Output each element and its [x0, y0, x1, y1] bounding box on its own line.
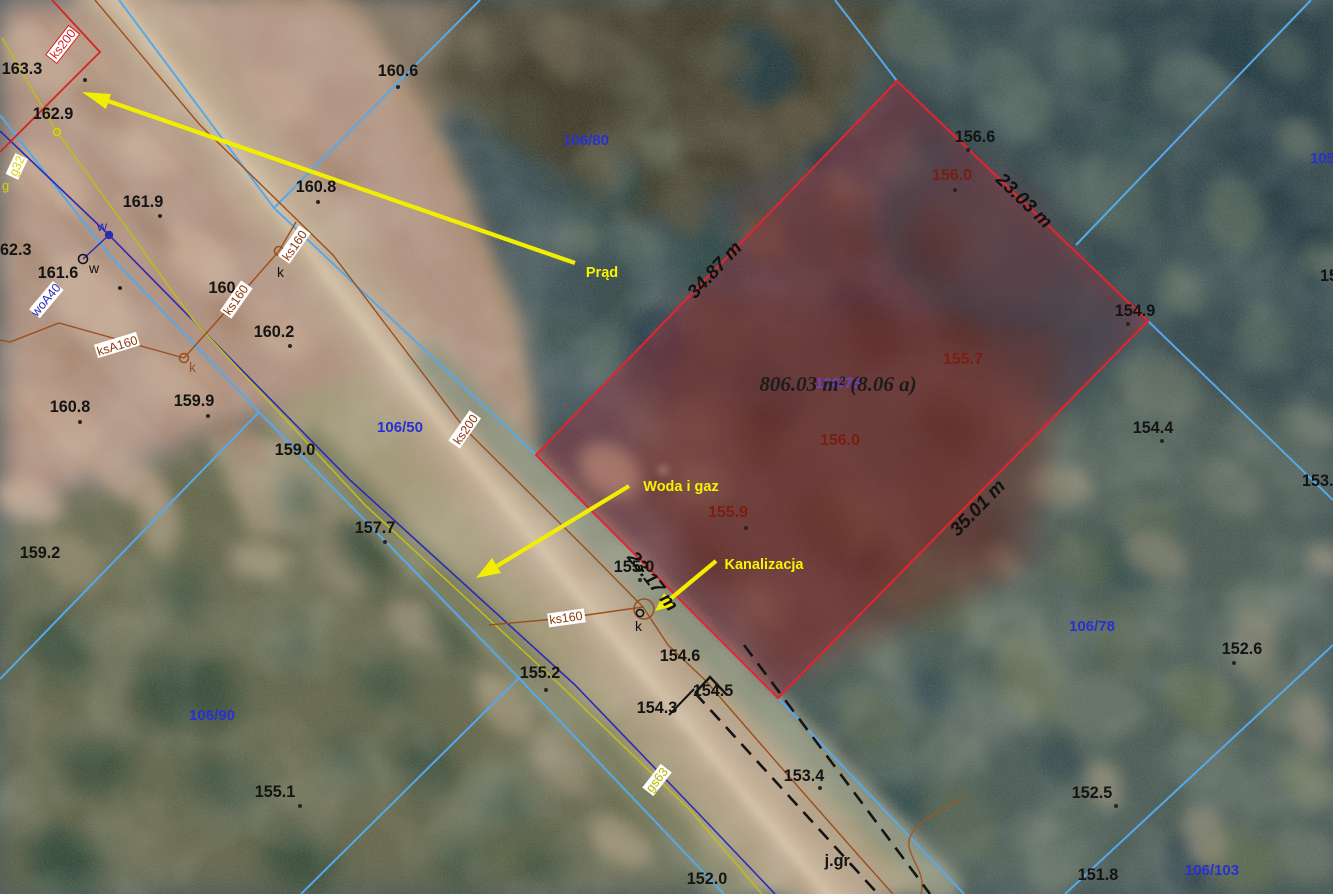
svg-text:160.6: 160.6	[378, 62, 419, 80]
svg-text:162.9: 162.9	[33, 105, 74, 123]
svg-text:k: k	[277, 264, 285, 280]
svg-text:106/50: 106/50	[377, 419, 423, 436]
svg-text:154.6: 154.6	[660, 647, 701, 665]
svg-text:k: k	[635, 618, 643, 634]
svg-text:106/78: 106/78	[1069, 618, 1115, 635]
svg-text:105: 105	[1310, 150, 1333, 167]
svg-text:159.2: 159.2	[20, 544, 61, 562]
svg-text:161.9: 161.9	[123, 193, 164, 211]
svg-text:160.2: 160.2	[254, 323, 295, 341]
svg-text:154.4: 154.4	[1133, 419, 1174, 437]
svg-text:157.7: 157.7	[355, 519, 396, 537]
svg-text:152.5: 152.5	[1072, 784, 1113, 802]
svg-text:156.0: 156.0	[932, 167, 972, 184]
svg-text:Kanalizacja: Kanalizacja	[725, 557, 805, 573]
svg-text:154.3: 154.3	[637, 699, 678, 717]
svg-text:106/90: 106/90	[189, 707, 235, 724]
svg-text:152.0: 152.0	[687, 870, 728, 888]
svg-text:w: w	[88, 260, 100, 276]
svg-text:156.6: 156.6	[955, 128, 996, 146]
svg-text:62.3: 62.3	[0, 241, 32, 259]
svg-text:151.8: 151.8	[1078, 866, 1119, 884]
svg-text:g: g	[2, 178, 9, 193]
svg-text:161.6: 161.6	[38, 264, 79, 282]
svg-text:160.8: 160.8	[296, 178, 337, 196]
svg-text:163.3: 163.3	[2, 60, 43, 78]
svg-text:160.8: 160.8	[50, 398, 91, 416]
svg-text:154.5: 154.5	[693, 682, 734, 700]
svg-text:155.2: 155.2	[520, 664, 561, 682]
svg-text:156.0: 156.0	[820, 432, 860, 449]
svg-text:155.9: 155.9	[708, 504, 748, 521]
svg-text:155.1: 155.1	[255, 783, 296, 801]
svg-text:806.03 m² (8.06 a): 806.03 m² (8.06 a)	[759, 372, 916, 396]
svg-text:Prąd: Prąd	[586, 265, 618, 281]
svg-text:153.: 153.	[1302, 472, 1333, 490]
svg-text:15: 15	[1320, 267, 1333, 285]
svg-text:155.7: 155.7	[943, 351, 983, 368]
svg-text:152.6: 152.6	[1222, 640, 1263, 658]
svg-text:159.9: 159.9	[174, 392, 215, 410]
svg-text:k: k	[189, 359, 197, 375]
svg-text:159.0: 159.0	[275, 441, 316, 459]
svg-text:106/80: 106/80	[563, 132, 609, 149]
svg-text:w: w	[96, 218, 108, 234]
svg-text:Woda i gaz: Woda i gaz	[643, 479, 718, 495]
svg-text:106/103: 106/103	[1185, 862, 1239, 879]
svg-text:153.4: 153.4	[784, 767, 825, 785]
svg-text:154.9: 154.9	[1115, 302, 1156, 320]
svg-text:j.gr.: j.gr.	[824, 852, 854, 870]
